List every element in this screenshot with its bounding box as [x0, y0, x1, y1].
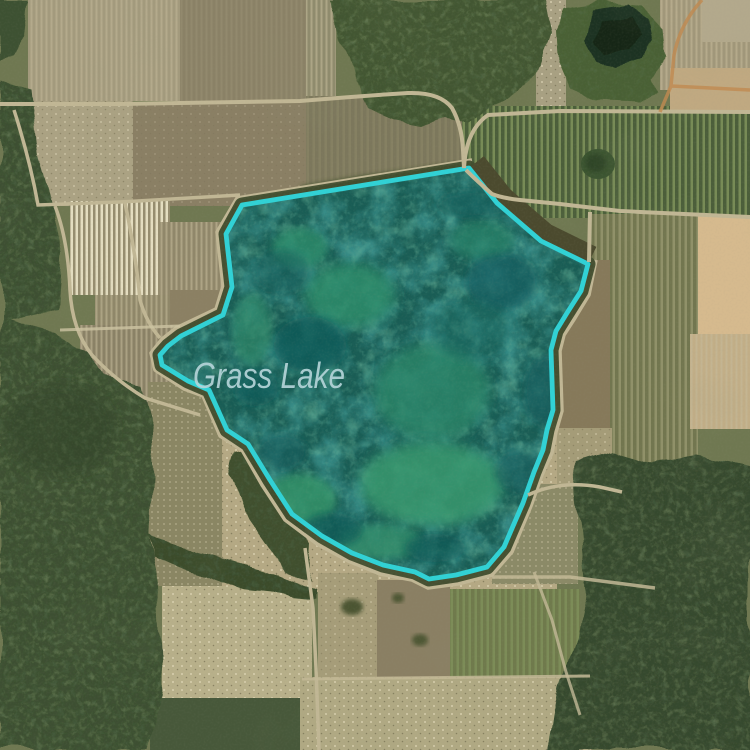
svg-text:Grass Lake: Grass Lake [193, 355, 345, 396]
